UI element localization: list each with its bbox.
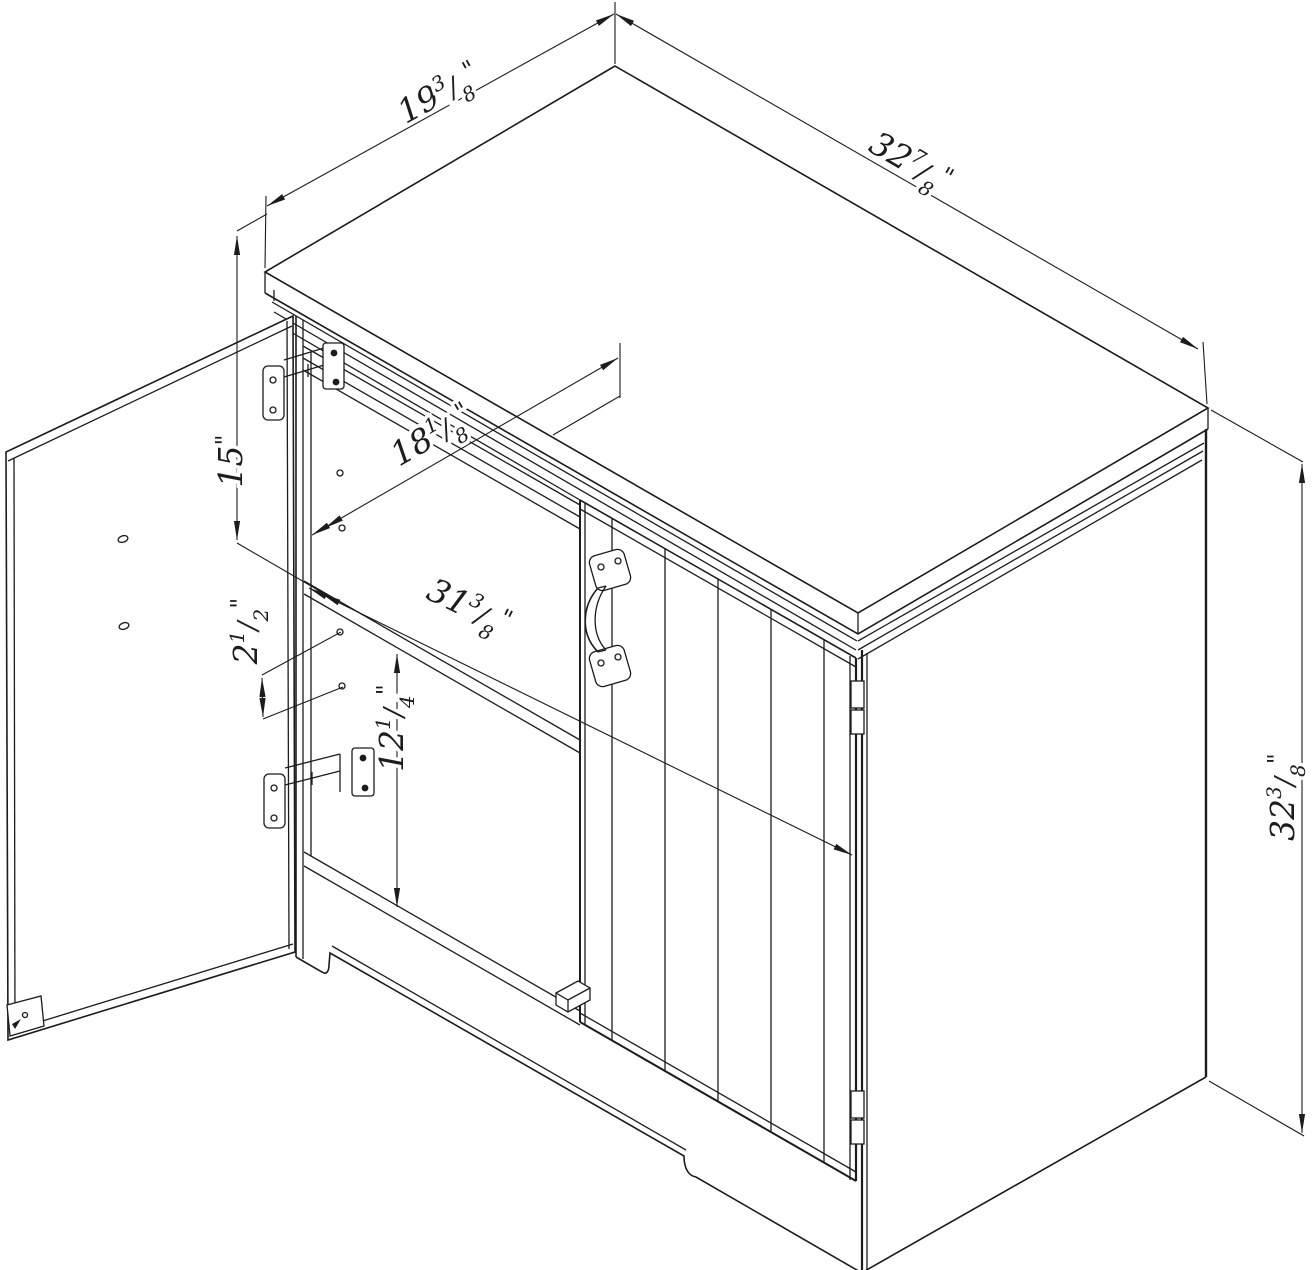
dim-label-interior-depth: 181/8" — [383, 395, 483, 480]
dim-label-lower-section-height: 121/4" — [371, 684, 419, 772]
dim-side-height: 323/8" — [1209, 410, 1310, 1136]
dim-label-interior-width: 313/8" — [418, 569, 518, 651]
dim-label-side-height: 323/8" — [1262, 753, 1310, 841]
dim-lower-section-height: 121/4" — [371, 654, 419, 907]
left-door-open — [6, 316, 295, 1040]
cabinet-top — [265, 66, 1208, 634]
shelf-pin-holes — [337, 470, 345, 689]
dim-label-top-width: 327/8" — [859, 122, 959, 207]
right-door — [556, 500, 864, 1181]
dim-label-top-depth: 193/8" — [390, 54, 490, 138]
cabinet-dimension-drawing: 193/8" 327/8" 15" 181/8" 313/8" 21/2" 12… — [0, 0, 1314, 1270]
right-door-hinge-bottom-icon — [851, 1091, 864, 1144]
right-door-hinge-top-icon — [851, 681, 864, 734]
technical-drawing-canvas: 193/8" 327/8" 15" 181/8" 313/8" 21/2" 12… — [0, 0, 1314, 1270]
cabinet-floor — [304, 852, 580, 1025]
